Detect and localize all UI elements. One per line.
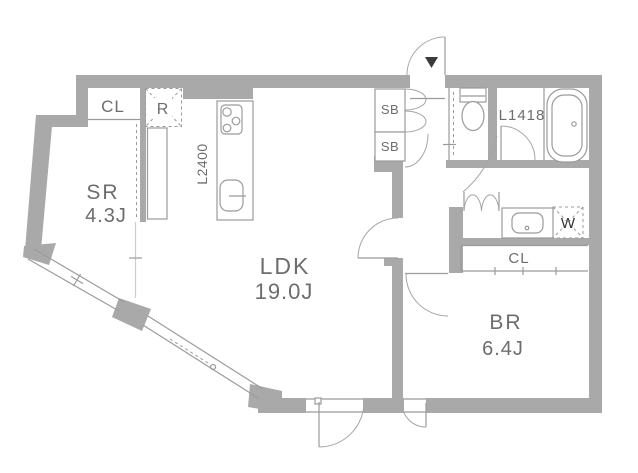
kitchen-counter-label: L2400 [194, 143, 210, 184]
service-room-area: 4.3J [85, 205, 127, 227]
floor-plan: CL R L2400 SR 4.3J LDK 19.0J SB SB L1418… [0, 0, 638, 473]
bathroom-door [501, 126, 535, 160]
vanity-sink [502, 208, 553, 238]
toilet [460, 88, 486, 131]
shoe-box-upper-label: SB [381, 102, 399, 117]
closet-br-label: CL [508, 250, 529, 267]
bedroom-window [402, 399, 426, 427]
refrigerator-label: R [157, 101, 170, 118]
bathroom [501, 88, 587, 162]
window-piers [23, 243, 282, 413]
kitchen-cabinet [148, 128, 168, 219]
kitchen-counter [217, 101, 253, 220]
bathtub-label: L1418 [499, 107, 546, 124]
entrance-door [407, 37, 445, 75]
entrance-marker-icon [425, 57, 438, 68]
bedroom-area: 6.4J [482, 338, 524, 360]
closet-sr-label: CL [101, 97, 125, 116]
shoe-boxes [375, 89, 428, 167]
bathtub [547, 89, 587, 162]
ldk-area: 19.0J [255, 279, 314, 304]
balcony-window [28, 249, 263, 398]
floor-plan-svg: CL R L2400 SR 4.3J LDK 19.0J SB SB L1418… [0, 0, 638, 473]
bifold-door [464, 192, 499, 211]
shoe-box-lower-label: SB [381, 139, 399, 154]
bedroom-door [405, 274, 448, 317]
ldk-label: LDK [260, 253, 311, 279]
service-room-label: SR [86, 181, 119, 204]
ldk-door [358, 218, 398, 258]
bedroom-label: BR [489, 311, 522, 334]
ldk-window [306, 398, 364, 447]
washing-machine-label: W [561, 215, 576, 232]
